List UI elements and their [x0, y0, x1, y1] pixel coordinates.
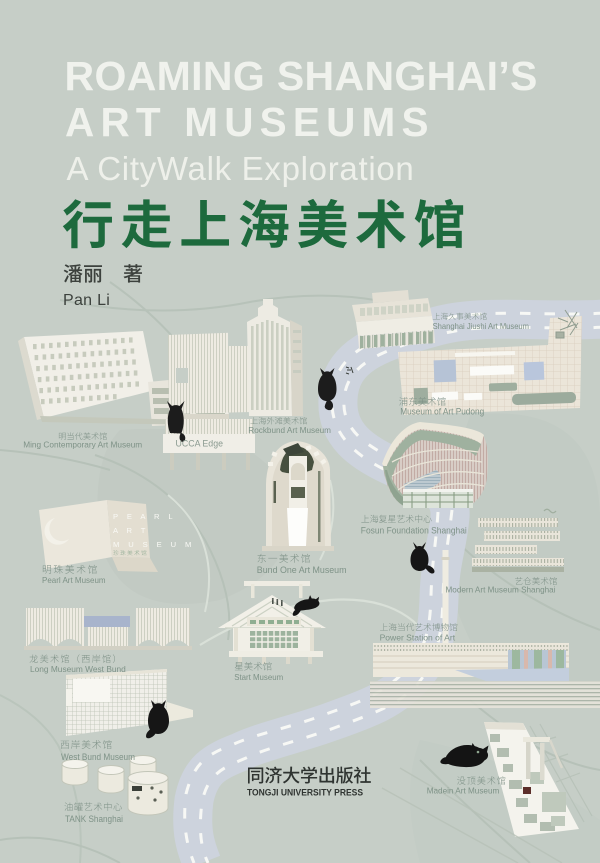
- svg-text:Fosun Foundation Shanghai: Fosun Foundation Shanghai: [361, 526, 467, 536]
- svg-text:Shanghai Jiushi Art Museum: Shanghai Jiushi Art Museum: [433, 321, 529, 331]
- svg-text:Power Station of Art: Power Station of Art: [380, 632, 456, 642]
- svg-text:A R T: A R T: [113, 526, 149, 535]
- svg-text:P E A R L: P E A R L: [113, 512, 176, 521]
- svg-text:M U S E U M: M U S E U M: [113, 540, 195, 549]
- svg-text:TONGJI UNIVERSITY PRESS: TONGJI UNIVERSITY PRESS: [247, 788, 364, 799]
- svg-text:ART MUSEUMS: ART MUSEUMS: [65, 99, 435, 145]
- svg-text:Pan Li: Pan Li: [63, 292, 110, 309]
- svg-text:Rockbund Art Museum: Rockbund Art Museum: [248, 425, 331, 435]
- svg-text:Madein Art Museum: Madein Art Museum: [427, 786, 500, 796]
- svg-text:ROAMING SHANGHAI’S: ROAMING SHANGHAI’S: [65, 53, 538, 99]
- svg-text:UCCA Edge: UCCA Edge: [176, 439, 224, 449]
- svg-text:Museum of Art Pudong: Museum of Art Pudong: [400, 407, 484, 417]
- svg-text:TANK Shanghai: TANK Shanghai: [65, 814, 123, 824]
- svg-text:Ming Contemporary Art Museum: Ming Contemporary Art Museum: [23, 440, 142, 450]
- svg-text:Pearl Art Museum: Pearl Art Museum: [42, 575, 106, 585]
- svg-text:A CityWalk Exploration: A CityWalk Exploration: [67, 150, 415, 187]
- svg-text:Modern Art Museum Shanghai: Modern Art Museum Shanghai: [446, 585, 556, 595]
- svg-text:Long Museum West Bund: Long Museum West Bund: [30, 664, 126, 674]
- svg-text:Start Museum: Start Museum: [234, 672, 283, 682]
- svg-text:Bund One Art Museum: Bund One Art Museum: [257, 565, 347, 575]
- svg-text:West Bund Museum: West Bund Museum: [61, 752, 135, 762]
